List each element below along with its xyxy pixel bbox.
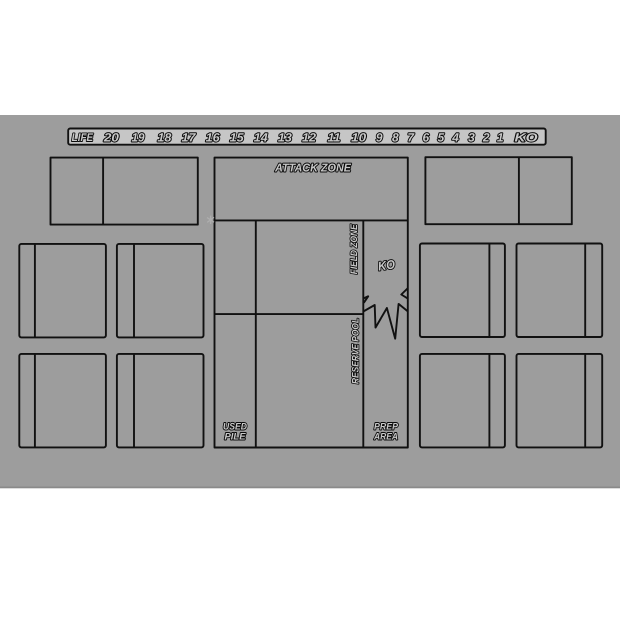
svg-text:PILE: PILE <box>225 432 247 443</box>
svg-text:6: 6 <box>422 131 429 145</box>
svg-text:14: 14 <box>254 131 268 145</box>
svg-text:16: 16 <box>206 131 220 145</box>
svg-text:13: 13 <box>278 131 292 145</box>
svg-text:10: 10 <box>351 131 366 145</box>
svg-text:15: 15 <box>230 131 244 145</box>
svg-text:20: 20 <box>103 131 119 145</box>
svg-text:ATTACK ZONE: ATTACK ZONE <box>274 162 351 174</box>
svg-text:11: 11 <box>328 131 341 145</box>
svg-text:RESERVE POOL: RESERVE POOL <box>351 318 362 384</box>
svg-text:9: 9 <box>376 131 383 145</box>
svg-text:FIELD ZONE: FIELD ZONE <box>349 224 360 275</box>
svg-text:5: 5 <box>438 131 445 145</box>
svg-text:2: 2 <box>482 131 490 145</box>
svg-text:1: 1 <box>497 131 504 145</box>
svg-text:17: 17 <box>182 131 197 145</box>
svg-text:19: 19 <box>132 131 145 145</box>
svg-text:18: 18 <box>157 131 171 145</box>
svg-text:4: 4 <box>451 131 459 145</box>
svg-text:3: 3 <box>468 131 475 145</box>
svg-text:KO: KO <box>515 131 539 145</box>
svg-text:8: 8 <box>392 131 399 145</box>
svg-text:12: 12 <box>302 131 316 145</box>
svg-text:AREA: AREA <box>373 432 398 443</box>
svg-text:KO: KO <box>377 257 396 273</box>
svg-text:LIFE: LIFE <box>72 132 94 144</box>
